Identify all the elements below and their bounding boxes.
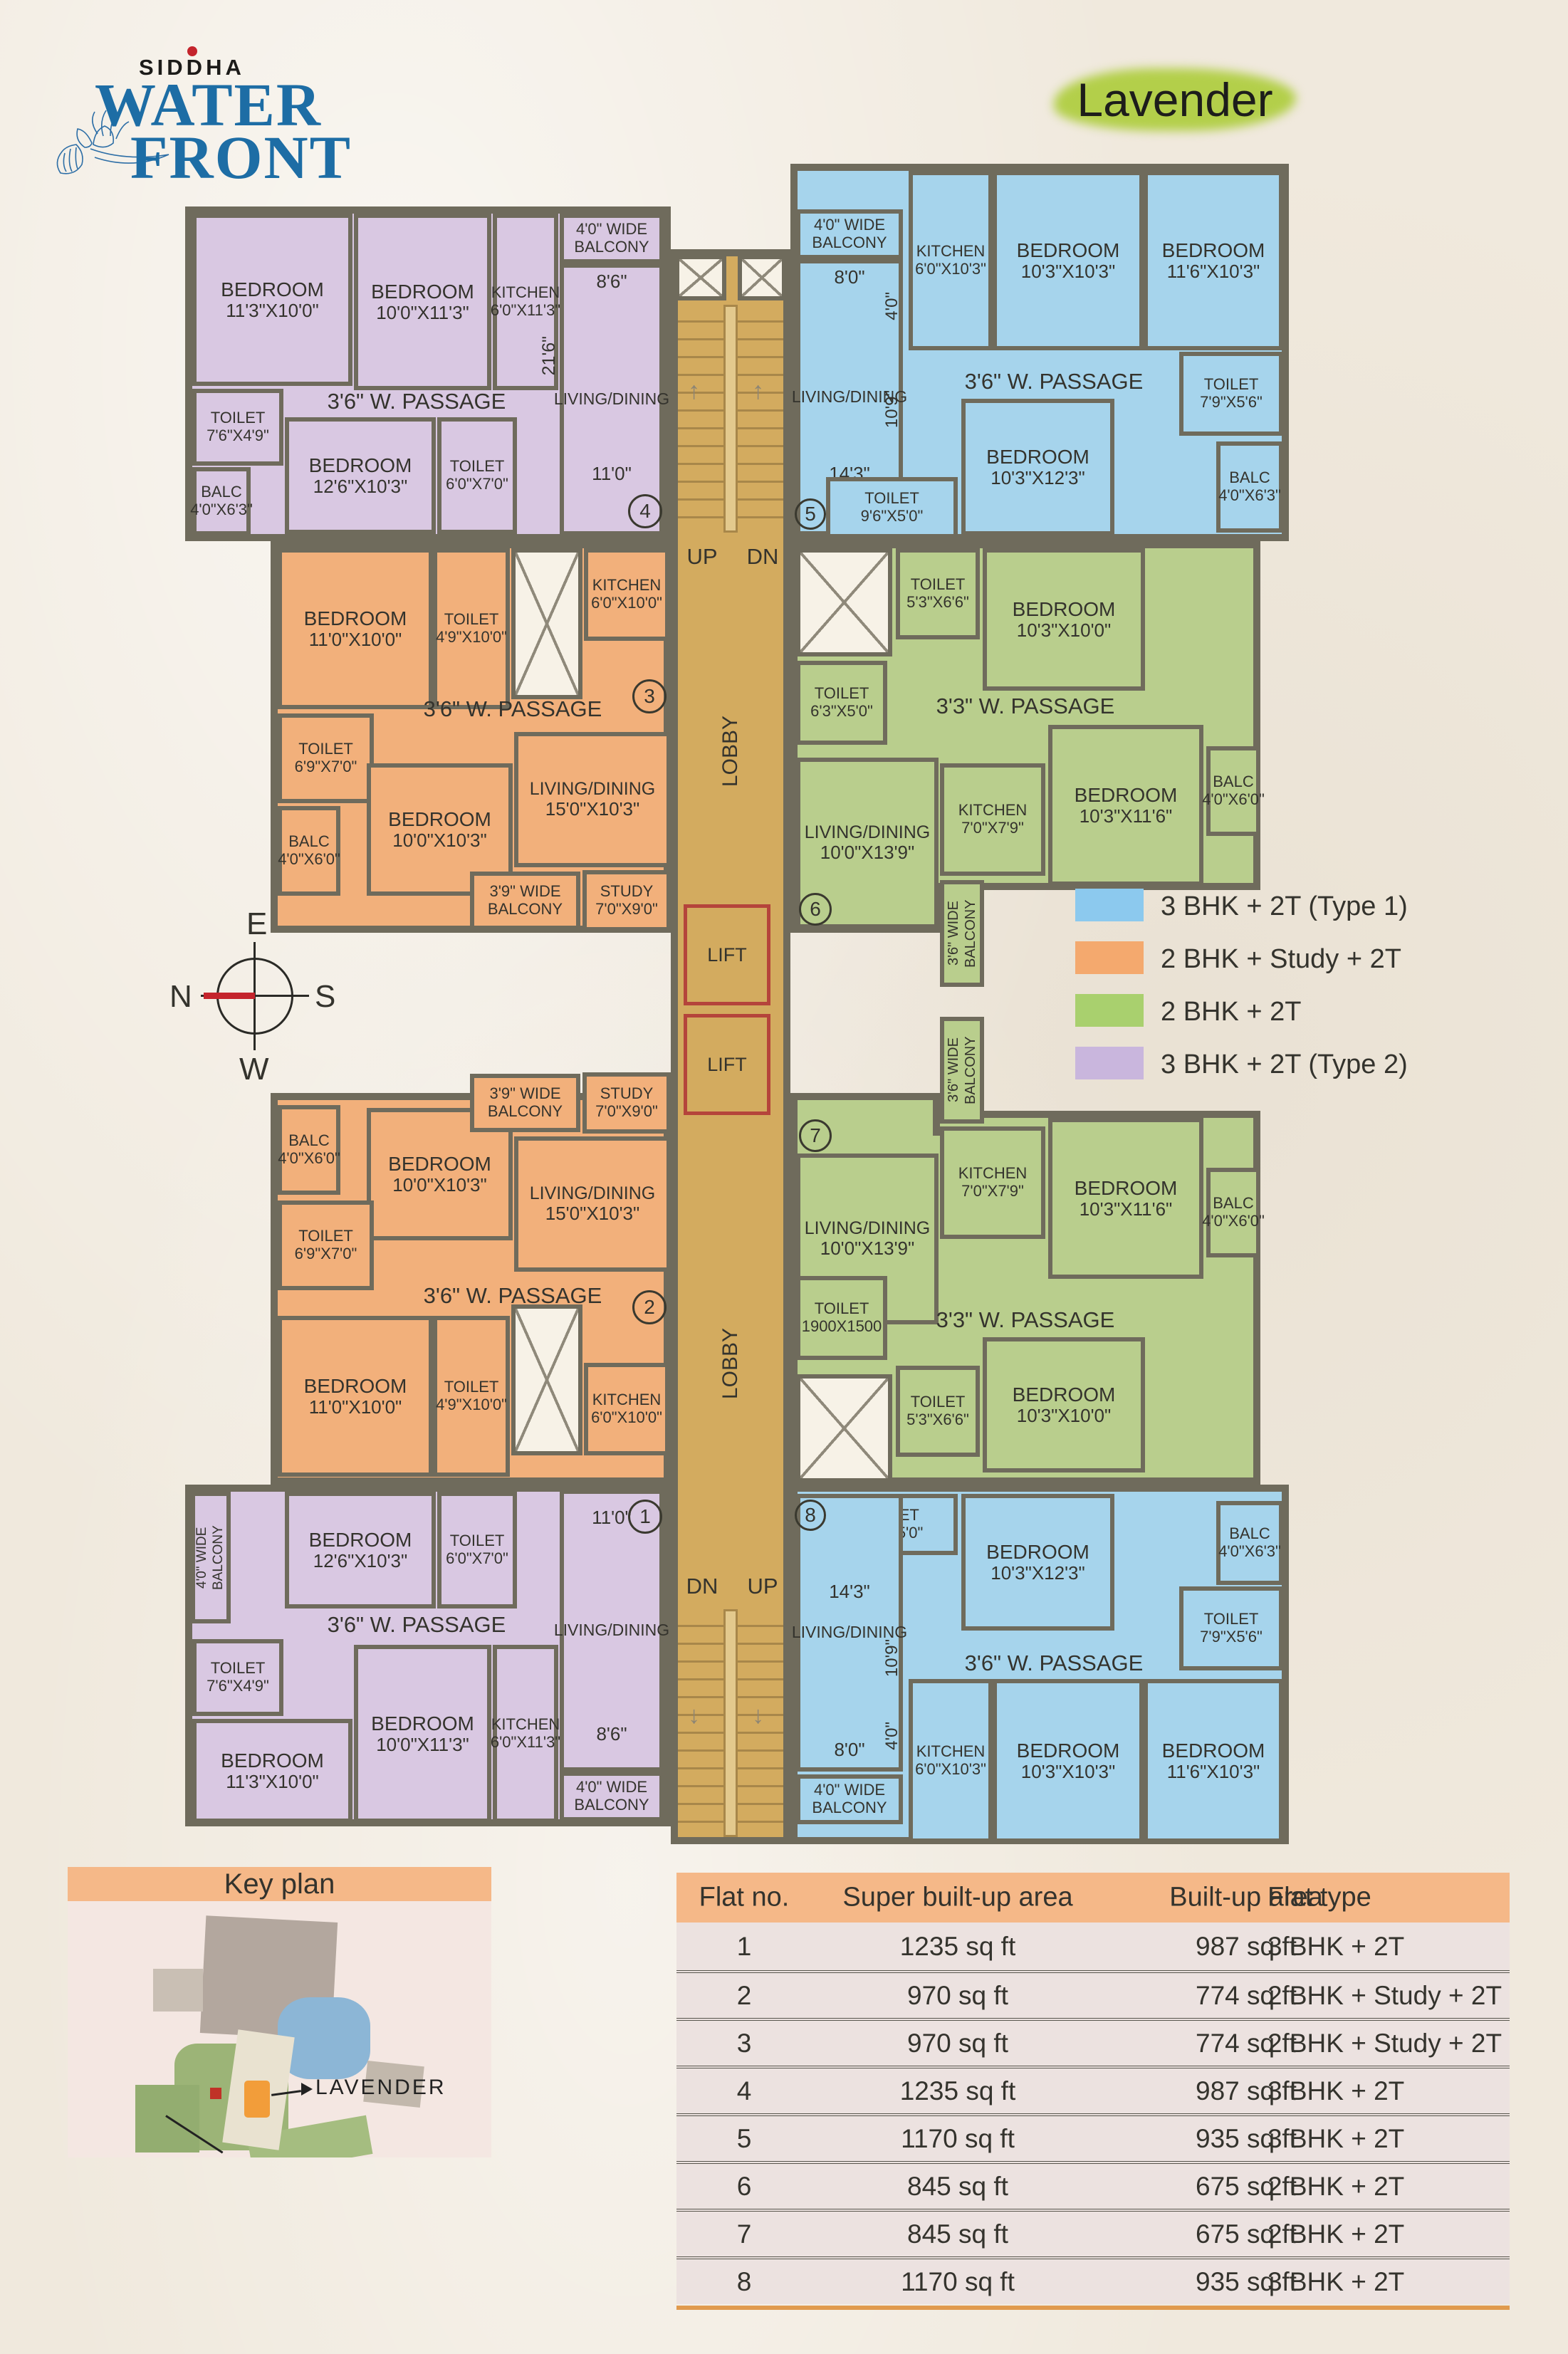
- passage-label: 3'6" W. PASSAGE: [285, 389, 548, 414]
- room-label: STUDY: [600, 883, 654, 901]
- table-row: 1 1235 sq ft 987 sq ft 3 BHK + 2T: [676, 1923, 1510, 1970]
- room-toilet: TOILET 9'6"X5'0": [826, 477, 958, 538]
- passage-label: 3'6" W. PASSAGE: [926, 1651, 1182, 1676]
- legend-label: 2 BHK + Study + 2T: [1161, 944, 1401, 975]
- room-dim: 6'0"X7'0": [446, 476, 508, 493]
- legend-swatch: [1075, 994, 1144, 1027]
- cell-flat-no: 2: [698, 1981, 790, 2011]
- room-label: KITCHEN: [491, 284, 560, 302]
- flat-number-badge: 1: [628, 1500, 662, 1534]
- stair-arrow-icon: ↑: [688, 377, 700, 405]
- room-dim: 6'0"X10'3": [915, 1761, 986, 1779]
- page-title: Lavender: [1054, 63, 1296, 137]
- flat-number-badge: 5: [795, 498, 826, 530]
- room-label: 3'6" WIDE BALCONY: [945, 884, 979, 983]
- keyplan-lavender-marker: [244, 2081, 270, 2118]
- room-bedroom: BEDROOM 12'6"X10'3": [285, 1492, 436, 1608]
- room-dim: 10'3"X10'3": [1021, 261, 1116, 282]
- room-label: TOILET: [815, 685, 869, 703]
- duct-shaft: [738, 255, 786, 300]
- cell-flat-no: 4: [698, 2076, 790, 2106]
- room-label: BALC: [288, 833, 329, 851]
- room-dim: 11'3"X10'0": [226, 300, 319, 321]
- room-label: TOILET: [298, 741, 353, 758]
- room-label: TOILET: [444, 611, 499, 629]
- stairs-dn-label: DN: [676, 1572, 728, 1601]
- room-label: 4'0" WIDE BALCONY: [802, 216, 897, 251]
- room-bedroom: BEDROOM 10'3"X11'6": [1048, 725, 1203, 886]
- room-toilet: TOILET 6'0"X7'0": [437, 417, 517, 534]
- table-row: 3 970 sq ft 774 sq ft 2 BHK + Study + 2T: [676, 2018, 1510, 2066]
- room-label: KITCHEN: [958, 1165, 1028, 1183]
- room-label: 4'0" WIDE BALCONY: [565, 221, 658, 256]
- stairs-up-label: UP: [739, 1572, 786, 1601]
- room-dim: 4'0"X6'3": [190, 501, 253, 519]
- room-balcony: 4'0" WIDE BALCONY: [560, 214, 664, 263]
- lobby-label: LOBBY: [715, 691, 746, 812]
- flat-number-badge: 7: [799, 1119, 832, 1152]
- room-label: TOILET: [444, 1379, 499, 1396]
- room-dim: 11'6"X10'3": [1167, 1762, 1260, 1782]
- cell-flat-type: 3 BHK + 2T: [1268, 2267, 1502, 2297]
- room-kitchen: KITCHEN 6'0"X10'3": [909, 1679, 993, 1843]
- room-label: BEDROOM: [371, 1712, 474, 1735]
- keyplan-red-block: [210, 2088, 221, 2099]
- compass-e: E: [246, 906, 267, 942]
- room-dim: 10'0"X13'9": [820, 1238, 915, 1259]
- room-dim: 6'0"X10'0": [591, 1409, 662, 1427]
- flat-number-badge: 2: [632, 1290, 667, 1324]
- flat-number-badge: 8: [795, 1500, 826, 1531]
- room-label: LIVING/DINING: [530, 779, 655, 799]
- compass-needle: [204, 993, 255, 999]
- room-dim: 11'0"X10'0": [309, 629, 402, 650]
- room-bedroom: BEDROOM 11'0"X10'0": [278, 1316, 433, 1477]
- room-toilet: TOILET 5'3"X6'6": [896, 548, 980, 639]
- dim-label: 4'0": [883, 278, 901, 335]
- passage-label: 3'3" W. PASSAGE: [897, 694, 1154, 719]
- room-bedroom: BEDROOM 10'3"X10'3": [993, 1679, 1144, 1843]
- room-balcony: 4'0" WIDE BALCONY: [191, 1492, 231, 1623]
- room-dim: 6'0"X7'0": [446, 1550, 508, 1568]
- lift-2: LIFT: [684, 1014, 770, 1115]
- room-label: TOILET: [211, 1660, 266, 1678]
- room-dim: 10'3"X12'3": [991, 468, 1085, 488]
- cell-super-area: 1170 sq ft: [805, 2124, 1111, 2154]
- table-underline: [676, 2306, 1510, 2310]
- room-label: KITCHEN: [916, 1743, 986, 1761]
- room-toilet: TOILET 4'9"X10'0": [433, 1316, 510, 1477]
- room-balcony: BALC 4'0"X6'3": [192, 467, 251, 535]
- room-dim: 4'0"X6'0": [1202, 791, 1265, 809]
- cell-flat-no: 7: [698, 2219, 790, 2249]
- table-row: 5 1170 sq ft 935 sq ft 3 BHK + 2T: [676, 2113, 1510, 2161]
- compass-icon: E N S W: [184, 922, 326, 1072]
- room-label: BALC: [1229, 1525, 1270, 1543]
- lobby-label: LOBBY: [715, 1303, 746, 1424]
- room-dim: 10'0"X10'3": [392, 1175, 487, 1196]
- room-dim: 10'3"X10'0": [1017, 620, 1112, 641]
- room-label: 4'0" WIDE BALCONY: [194, 1496, 227, 1619]
- room-balcony: 4'0" WIDE BALCONY: [796, 1774, 903, 1824]
- room-toilet: TOILET 6'3"X5'0": [796, 661, 887, 745]
- room-dim: 10'0"X11'3": [376, 1735, 469, 1755]
- room-living: LIVING/DINING 15'0"X10'3": [514, 1136, 671, 1272]
- cell-super-area: 970 sq ft: [805, 1981, 1111, 2011]
- room-balcony: BALC 4'0"X6'0": [278, 806, 340, 896]
- room-kitchen: KITCHEN 7'0"X7'9": [940, 763, 1045, 876]
- room-balcony: 3'9" WIDE BALCONY: [470, 872, 580, 930]
- room-balcony: 3'9" WIDE BALCONY: [470, 1074, 580, 1132]
- dim-label: 11'0": [563, 463, 661, 485]
- room-dim: 7'0"X7'9": [961, 1183, 1024, 1200]
- room-label: BEDROOM: [304, 607, 407, 629]
- col-header: Flat type: [1268, 1883, 1502, 1913]
- arrow-right-icon: [301, 2083, 313, 2096]
- room-label: BALC: [1213, 1195, 1253, 1213]
- dim-label: 14'3": [799, 1581, 900, 1603]
- room-toilet: TOILET 7'6"X4'9": [192, 1639, 283, 1716]
- room-balcony: BALC 4'0"X6'0": [278, 1105, 340, 1195]
- room-balcony: 3'6" WIDE BALCONY: [940, 1017, 984, 1124]
- table-row: 2 970 sq ft 774 sq ft 2 BHK + Study + 2T: [676, 1970, 1510, 2018]
- room-dim: 10'0"X11'3": [376, 303, 469, 323]
- room-label: KITCHEN: [916, 243, 986, 261]
- room-bedroom: BEDROOM 10'3"X12'3": [961, 1494, 1114, 1631]
- room-label: TOILET: [450, 1532, 505, 1550]
- room-toilet: TOILET 7'9"X5'6": [1179, 352, 1283, 436]
- cell-super-area: 970 sq ft: [805, 2029, 1111, 2059]
- dim-label: 21'6": [540, 313, 558, 399]
- room-dim: 6'3"X5'0": [810, 703, 873, 721]
- room-bedroom: BEDROOM 11'6"X10'3": [1144, 171, 1283, 350]
- room-dim: 4'0"X6'0": [1202, 1213, 1265, 1230]
- room-living: LIVING/DINING 15'0"X10'3": [514, 732, 671, 867]
- room-label: BEDROOM: [309, 454, 412, 476]
- keyplan-green: [135, 2085, 199, 2152]
- room-label: KITCHEN: [958, 802, 1028, 820]
- table-row: 4 1235 sq ft 987 sq ft 3 BHK + 2T: [676, 2066, 1510, 2113]
- cell-flat-type: 3 BHK + 2T: [1268, 2124, 1502, 2154]
- dim-label: 10'9": [883, 370, 901, 449]
- passage-label: 3'3" W. PASSAGE: [897, 1307, 1154, 1333]
- stair-divider: [723, 1609, 738, 1837]
- legend-swatch: [1075, 1047, 1144, 1079]
- cell-flat-type: 2 BHK + 2T: [1268, 2172, 1502, 2202]
- room-dim: 4'0"X6'3": [1218, 487, 1281, 505]
- room-label: BALC: [1229, 469, 1270, 487]
- room-dim: 6'9"X7'0": [295, 1245, 357, 1263]
- keyplan-marker-label: LAVENDER: [315, 2076, 446, 2100]
- room-dim: 4'0"X6'0": [278, 1150, 340, 1168]
- room-label: TOILET: [298, 1228, 353, 1245]
- page-title-wrap: Lavender: [1054, 63, 1296, 137]
- room-balcony: 4'0" WIDE BALCONY: [796, 209, 903, 259]
- room-label: 4'0" WIDE BALCONY: [565, 1779, 658, 1814]
- room-dim: 6'0"X10'0": [591, 595, 662, 612]
- flat-number-badge: 6: [799, 893, 832, 926]
- table-row: 7 845 sq ft 675 sq ft 2 BHK + 2T: [676, 2209, 1510, 2256]
- room-label: BEDROOM: [1075, 1177, 1178, 1199]
- legend-swatch: [1075, 889, 1144, 921]
- room-label: BEDROOM: [986, 1541, 1089, 1563]
- lift-1: LIFT: [684, 904, 770, 1005]
- legend-label: 2 BHK + 2T: [1161, 997, 1301, 1027]
- room-balcony: BALC 4'0"X6'3": [1216, 441, 1283, 533]
- room-label: BEDROOM: [388, 808, 491, 830]
- stair-arrow-icon: ↓: [688, 1702, 700, 1730]
- room-label: 3'9" WIDE BALCONY: [476, 883, 575, 918]
- cell-flat-no: 3: [698, 2029, 790, 2059]
- room-label: BEDROOM: [1013, 1383, 1116, 1406]
- room-study: STUDY 7'0"X9'0": [582, 870, 671, 931]
- passage-label: 3'6" W. PASSAGE: [926, 369, 1182, 394]
- room-label: BEDROOM: [986, 446, 1089, 468]
- room-toilet: TOILET 6'9"X7'0": [278, 1200, 374, 1290]
- room-label: BEDROOM: [1013, 598, 1116, 620]
- room-dim: 7'6"X4'9": [207, 427, 269, 445]
- room-study: STUDY 7'0"X9'0": [582, 1072, 671, 1134]
- room-dim: 7'0"X9'0": [595, 901, 658, 919]
- table-row: 8 1170 sq ft 935 sq ft 3 BHK + 2T: [676, 2256, 1510, 2304]
- room-kitchen: KITCHEN 6'0"X10'3": [909, 171, 993, 350]
- compass-s: S: [315, 979, 335, 1015]
- room-balcony: 4'0" WIDE BALCONY: [560, 1772, 664, 1821]
- compass-n: N: [169, 979, 192, 1015]
- room-bedroom: BEDROOM 10'3"X10'0": [983, 548, 1145, 691]
- cell-flat-no: 5: [698, 2124, 790, 2154]
- cell-flat-type: 3 BHK + 2T: [1268, 2076, 1502, 2106]
- room-label: TOILET: [1204, 1611, 1259, 1628]
- dim-label: 8'6": [563, 1723, 661, 1745]
- room-dim: 10'3"X10'3": [1021, 1762, 1116, 1782]
- room-label: BEDROOM: [388, 1153, 491, 1175]
- cell-super-area: 1170 sq ft: [805, 2267, 1111, 2297]
- room-dim: 7'0"X9'0": [595, 1103, 658, 1121]
- keyplan-map: LAVENDER: [68, 1901, 491, 2157]
- room-dim: 5'3"X6'6": [906, 1411, 969, 1429]
- room-dim: 4'9"X10'0": [436, 1396, 507, 1414]
- room-label: TOILET: [1204, 376, 1259, 394]
- room-label: STUDY: [600, 1085, 654, 1103]
- table-header-row: Flat no. Super built-up area Built-up ar…: [676, 1873, 1510, 1923]
- cell-flat-no: 6: [698, 2172, 790, 2202]
- room-bedroom: BEDROOM 11'3"X10'0": [192, 1719, 352, 1823]
- room-label: 3'9" WIDE BALCONY: [476, 1085, 575, 1120]
- room-toilet: TOILET 1900X1500: [796, 1276, 887, 1360]
- cell-flat-no: 1: [698, 1932, 790, 1962]
- cell-super-area: 845 sq ft: [805, 2172, 1111, 2202]
- cell-super-area: 845 sq ft: [805, 2219, 1111, 2249]
- room-label: KITCHEN: [592, 1391, 662, 1409]
- room-balcony: 3'6" WIDE BALCONY: [940, 880, 984, 987]
- cell-flat-type: 2 BHK + Study + 2T: [1268, 1981, 1502, 2011]
- passage-label: 3'6" W. PASSAGE: [285, 1612, 548, 1638]
- stairs-dn-label: DN: [739, 543, 786, 571]
- room-dim: 1900X1500: [802, 1318, 882, 1336]
- room-label: BEDROOM: [309, 1529, 412, 1551]
- legend-label: 3 BHK + 2T (Type 2): [1161, 1050, 1408, 1080]
- room-kitchen: KITCHEN 6'0"X10'0": [584, 548, 669, 641]
- room-label: BEDROOM: [1017, 239, 1120, 261]
- legend-swatch: [1075, 941, 1144, 974]
- room-bedroom: BEDROOM 10'3"X10'3": [993, 171, 1144, 350]
- room-toilet: TOILET 7'9"X5'6": [1179, 1586, 1283, 1670]
- passage-label: 3'6" W. PASSAGE: [377, 696, 648, 722]
- room-dim: 4'9"X10'0": [436, 629, 507, 647]
- room-label: BEDROOM: [304, 1375, 407, 1397]
- room-dim: 15'0"X10'3": [545, 1203, 640, 1224]
- room-toilet: TOILET 6'9"X7'0": [278, 713, 374, 803]
- cell-flat-no: 8: [698, 2267, 790, 2297]
- lift-shaft: [511, 1304, 582, 1455]
- legend-label: 3 BHK + 2T (Type 1): [1161, 891, 1408, 922]
- stair-divider: [723, 305, 738, 533]
- flat-number-badge: 4: [628, 494, 662, 528]
- room-label: LIVING/DINING: [554, 1621, 669, 1640]
- room-dim: 10'3"X11'6": [1080, 1199, 1173, 1220]
- duct-shaft: [675, 255, 726, 300]
- room-bedroom: BEDROOM 11'0"X10'0": [278, 548, 433, 709]
- room-dim: 10'3"X11'6": [1080, 806, 1173, 827]
- room-label: TOILET: [211, 409, 266, 427]
- room-bedroom: BEDROOM 11'6"X10'3": [1144, 1679, 1283, 1843]
- room-toilet: TOILET 4'9"X10'0": [433, 548, 510, 709]
- room-label: 4'0" WIDE BALCONY: [802, 1782, 897, 1816]
- room-bedroom: BEDROOM 10'0"X11'3": [354, 214, 491, 390]
- room-dim: 10'3"X12'3": [991, 1563, 1085, 1584]
- lift-shaft: [796, 548, 892, 656]
- stair-arrow-icon: ↑: [752, 377, 764, 405]
- room-kitchen: KITCHEN 6'0"X10'0": [584, 1363, 669, 1455]
- room-dim: 5'3"X6'6": [906, 594, 969, 612]
- cell-flat-type: 3 BHK + 2T: [1268, 1932, 1502, 1962]
- dim-label: 10'9": [883, 1619, 901, 1698]
- brand-logo: SIDDHA WATER FRONT: [39, 18, 345, 178]
- room-label: TOILET: [450, 458, 505, 476]
- room-label: KITCHEN: [491, 1716, 560, 1734]
- col-header: Flat no.: [698, 1883, 790, 1913]
- room-label: TOILET: [911, 576, 966, 594]
- dim-label: 8'6": [563, 271, 661, 293]
- room-label: LIVING/DINING: [530, 1183, 655, 1203]
- col-header: Super built-up area: [805, 1883, 1111, 1913]
- room-label: BEDROOM: [1017, 1740, 1120, 1762]
- room-dim: 7'9"X5'6": [1200, 1628, 1263, 1646]
- legend: 3 BHK + 2T (Type 1) 2 BHK + Study + 2T 2…: [1075, 889, 1545, 1102]
- room-label: LIVING/DINING: [805, 1218, 930, 1238]
- room-label: TOILET: [815, 1300, 869, 1318]
- room-bedroom: BEDROOM 10'3"X12'3": [961, 399, 1114, 535]
- room-dim: 15'0"X10'3": [545, 799, 640, 820]
- room-bedroom: BEDROOM 10'3"X10'0": [983, 1337, 1145, 1472]
- room-label: LIVING/DINING: [805, 822, 930, 842]
- keyplan-title: Key plan: [68, 1867, 491, 1901]
- room-dim: 10'0"X13'9": [820, 842, 915, 863]
- compass-w: W: [239, 1052, 269, 1087]
- room-dim: 10'0"X10'3": [392, 830, 487, 851]
- stair-arrow-icon: ↓: [752, 1702, 764, 1730]
- room-balcony: BALC 4'0"X6'0": [1206, 1168, 1260, 1257]
- room-dim: 11'3"X10'0": [226, 1772, 319, 1792]
- room-label: KITCHEN: [592, 577, 662, 595]
- dim-label: 8'0": [799, 1739, 900, 1761]
- room-label: 3'6" WIDE BALCONY: [945, 1021, 979, 1119]
- room-dim: 11'6"X10'3": [1167, 261, 1260, 282]
- room-balcony: BALC 4'0"X6'0": [1206, 746, 1260, 836]
- room-balcony: BALC 4'0"X6'3": [1216, 1501, 1283, 1585]
- cell-super-area: 1235 sq ft: [805, 2076, 1111, 2106]
- room-label: BALC: [201, 483, 241, 501]
- room-label: BEDROOM: [221, 278, 324, 300]
- room-label: TOILET: [864, 490, 919, 508]
- room-bedroom: BEDROOM 12'6"X10'3": [285, 417, 436, 534]
- room-dim: 7'9"X5'6": [1200, 394, 1263, 412]
- room-label: BEDROOM: [1162, 1740, 1265, 1762]
- room-label: TOILET: [911, 1393, 966, 1411]
- room-kitchen: KITCHEN 6'0"X11'3": [493, 1645, 558, 1823]
- flat-number-badge: 3: [632, 679, 667, 713]
- room-label: BALC: [1213, 773, 1253, 791]
- room-toilet: TOILET 7'6"X4'9": [192, 389, 283, 466]
- stairs-up-label: UP: [676, 543, 728, 571]
- table-row: 6 845 sq ft 675 sq ft 2 BHK + 2T: [676, 2161, 1510, 2209]
- room-dim: 12'6"X10'3": [313, 1551, 408, 1571]
- room-label: BEDROOM: [1075, 784, 1178, 806]
- room-dim: 11'0"X10'0": [309, 1397, 402, 1418]
- room-dim: 10'3"X10'0": [1017, 1406, 1112, 1426]
- room-bedroom: BEDROOM 10'3"X11'6": [1048, 1118, 1203, 1279]
- room-dim: 7'6"X4'9": [207, 1678, 269, 1695]
- cell-flat-type: 2 BHK + Study + 2T: [1268, 2029, 1502, 2059]
- lift-shaft: [511, 548, 582, 699]
- room-toilet: TOILET 5'3"X6'6": [896, 1366, 980, 1457]
- room-dim: 6'0"X10'3": [915, 261, 986, 278]
- room-bedroom: BEDROOM 11'3"X10'0": [192, 214, 352, 386]
- room-label: BEDROOM: [221, 1749, 324, 1772]
- lift-shaft: [796, 1374, 892, 1482]
- room-kitchen: KITCHEN 7'0"X7'9": [940, 1126, 1045, 1239]
- room-dim: 9'6"X5'0": [861, 508, 924, 525]
- room-dim: 7'0"X7'9": [961, 820, 1024, 837]
- room-dim: 6'0"X11'3": [491, 1734, 560, 1752]
- floorplan-poster: SIDDHA WATER FRONT Lavender ↑ ↑ UP DN LO…: [0, 0, 1568, 2354]
- room-bedroom: BEDROOM 10'0"X11'3": [354, 1645, 491, 1823]
- room-dim: 12'6"X10'3": [313, 476, 408, 497]
- area-table: Flat no. Super built-up area Built-up ar…: [676, 1873, 1510, 2310]
- room-dim: 6'9"X7'0": [295, 758, 357, 776]
- cell-flat-type: 2 BHK + 2T: [1268, 2219, 1502, 2249]
- room-dim: 4'0"X6'3": [1218, 1543, 1281, 1561]
- keyplan-building-block: [153, 1969, 203, 2012]
- room-label: BALC: [288, 1132, 329, 1150]
- cell-super-area: 1235 sq ft: [805, 1932, 1111, 1962]
- room-label: BEDROOM: [371, 281, 474, 303]
- room-toilet: TOILET 6'0"X7'0": [437, 1492, 517, 1608]
- room-label: BEDROOM: [1162, 239, 1265, 261]
- room-dim: 4'0"X6'0": [278, 851, 340, 869]
- room-label: LIVING/DINING: [554, 390, 669, 409]
